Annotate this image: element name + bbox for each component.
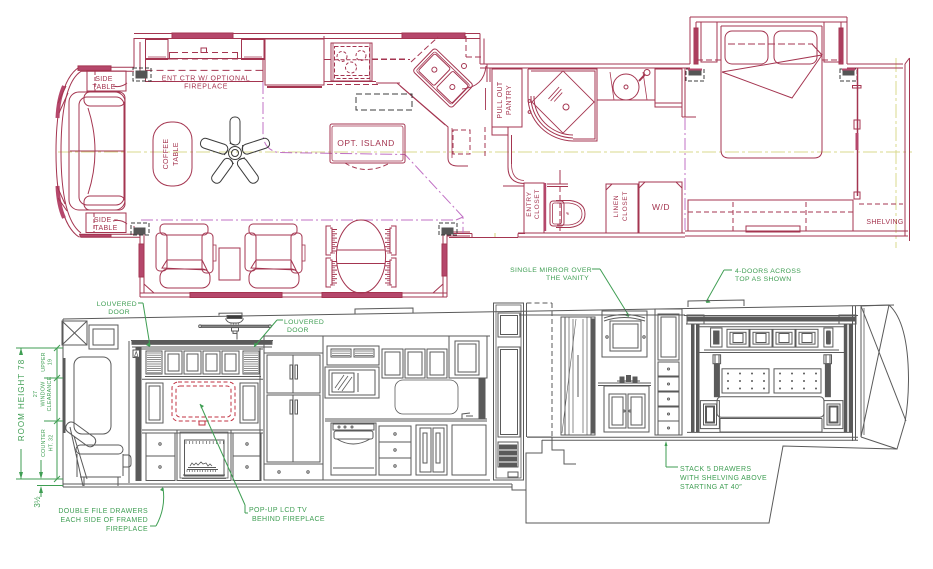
svg-text:STACK 5 DRAWERS: STACK 5 DRAWERS: [680, 466, 751, 473]
svg-text:FIREPLACE: FIREPLACE: [184, 84, 228, 91]
svg-text:ROOM HEIGHT 78: ROOM HEIGHT 78: [17, 359, 26, 441]
svg-text:TABLE: TABLE: [94, 225, 117, 232]
svg-text:CLOSET: CLOSET: [622, 191, 629, 221]
svg-text:CLEARANCE: CLEARANCE: [47, 376, 53, 411]
svg-text:WITH SHELVING ABOVE: WITH SHELVING ABOVE: [680, 475, 767, 482]
svg-text:4-DOORS ACROSS: 4-DOORS ACROSS: [735, 268, 801, 275]
svg-text:SINGLE MIRROR OVER: SINGLE MIRROR OVER: [510, 267, 592, 274]
svg-text:TABLE: TABLE: [173, 142, 180, 166]
svg-text:COFFEE: COFFEE: [163, 139, 170, 170]
svg-text:WINDOW: WINDOW: [41, 381, 47, 407]
svg-text:SIDE: SIDE: [95, 76, 113, 83]
svg-text:SHELVING: SHELVING: [866, 219, 903, 226]
svg-text:SIDE ~: SIDE ~: [94, 217, 118, 224]
svg-text:POP-UP LCD TV: POP-UP LCD TV: [249, 507, 307, 514]
svg-text:STARTING AT 40″: STARTING AT 40″: [680, 484, 742, 491]
svg-text:CLOSET: CLOSET: [534, 189, 541, 219]
svg-text:W/D: W/D: [652, 202, 670, 212]
svg-text:27: 27: [33, 391, 39, 397]
svg-text:TOP AS SHOWN: TOP AS SHOWN: [735, 276, 791, 283]
svg-text:UPPER: UPPER: [41, 352, 47, 372]
svg-text:PANTRY: PANTRY: [506, 85, 513, 115]
svg-text:PULL OUT: PULL OUT: [497, 81, 504, 118]
svg-text:BEHIND FIREPLACE: BEHIND FIREPLACE: [252, 516, 325, 523]
svg-text:EACH SIDE OF FRAMED: EACH SIDE OF FRAMED: [60, 517, 148, 524]
svg-text:DOUBLE FILE DRAWERS: DOUBLE FILE DRAWERS: [58, 508, 148, 515]
svg-text:OPT. ISLAND: OPT. ISLAND: [337, 138, 394, 148]
svg-text:LOUVERED: LOUVERED: [97, 301, 137, 308]
svg-text:DOOR: DOOR: [108, 309, 130, 316]
svg-text:FIREPLACE: FIREPLACE: [106, 526, 148, 533]
svg-text:COUNTER: COUNTER: [41, 429, 47, 457]
svg-text:THE VANITY: THE VANITY: [546, 275, 589, 282]
svg-text:ENT CTR W/ OPTIONAL: ENT CTR W/ OPTIONAL: [162, 76, 251, 83]
svg-text:HT. 32: HT. 32: [49, 435, 55, 452]
svg-text:LINEN: LINEN: [613, 195, 620, 218]
svg-text:LOUVERED: LOUVERED: [284, 319, 324, 326]
svg-text:ENTRY: ENTRY: [526, 191, 533, 216]
svg-text:3½: 3½: [33, 496, 42, 507]
svg-text:19: 19: [48, 359, 54, 365]
svg-text:DOOR: DOOR: [287, 327, 309, 334]
svg-text:TABLE: TABLE: [92, 84, 115, 91]
